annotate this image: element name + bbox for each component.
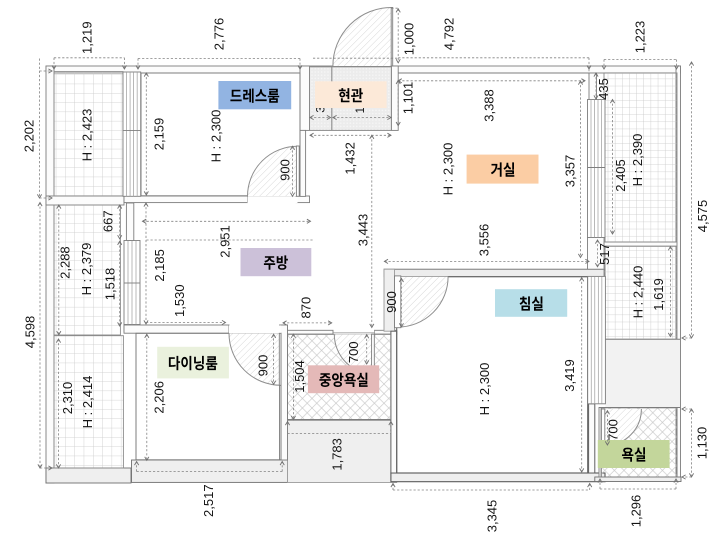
svg-text:2,185: 2,185 <box>152 249 167 282</box>
svg-text:700: 700 <box>346 341 361 363</box>
svg-text:2,517: 2,517 <box>201 484 216 517</box>
svg-text:2,776: 2,776 <box>212 18 227 51</box>
svg-text:3,419: 3,419 <box>562 359 577 392</box>
svg-text:1,219: 1,219 <box>79 21 94 54</box>
svg-text:2,206: 2,206 <box>152 381 167 414</box>
svg-text:1,223: 1,223 <box>633 21 648 54</box>
svg-text:H : 2,440: H : 2,440 <box>631 266 646 319</box>
svg-text:870: 870 <box>299 297 314 319</box>
svg-text:1,504: 1,504 <box>292 360 307 393</box>
svg-text:H : 2,423: H : 2,423 <box>80 109 95 162</box>
svg-text:H : 2,300: H : 2,300 <box>209 110 224 163</box>
svg-text:4,792: 4,792 <box>442 18 457 51</box>
svg-text:3,556: 3,556 <box>477 224 492 257</box>
svg-text:667: 667 <box>100 210 115 232</box>
svg-text:2,310: 2,310 <box>60 382 75 415</box>
svg-text:1,130: 1,130 <box>695 427 710 460</box>
svg-text:1,296: 1,296 <box>629 495 644 528</box>
svg-text:H : 2,300: H : 2,300 <box>440 143 455 196</box>
svg-text:1,783: 1,783 <box>329 438 344 471</box>
svg-text:1,000: 1,000 <box>402 23 417 56</box>
svg-text:1,432: 1,432 <box>343 142 358 175</box>
svg-text:H : 2,390: H : 2,390 <box>630 134 645 187</box>
svg-text:900: 900 <box>278 159 293 181</box>
svg-text:3,345: 3,345 <box>484 500 499 533</box>
svg-text:4,598: 4,598 <box>23 316 38 349</box>
svg-text:517: 517 <box>597 243 612 265</box>
svg-text:4,575: 4,575 <box>695 200 710 233</box>
svg-text:H : 2,300: H : 2,300 <box>477 363 492 416</box>
svg-text:900: 900 <box>384 291 399 313</box>
svg-text:3,357: 3,357 <box>563 155 578 188</box>
svg-text:H : 2,414: H : 2,414 <box>80 376 95 429</box>
svg-text:1,518: 1,518 <box>103 268 118 301</box>
svg-text:435: 435 <box>596 78 611 100</box>
svg-text:700: 700 <box>606 419 621 441</box>
svg-text:H : 2,379: H : 2,379 <box>79 243 94 296</box>
svg-text:1,101: 1,101 <box>400 82 415 115</box>
svg-text:2,951: 2,951 <box>217 225 232 258</box>
svg-text:1,530: 1,530 <box>172 284 187 317</box>
svg-text:2,288: 2,288 <box>58 246 73 279</box>
svg-text:3,388: 3,388 <box>482 89 497 122</box>
svg-text:1,619: 1,619 <box>651 278 666 311</box>
svg-text:900: 900 <box>256 355 271 377</box>
svg-text:2,159: 2,159 <box>152 118 167 151</box>
svg-text:3,443: 3,443 <box>355 214 370 247</box>
svg-text:2,202: 2,202 <box>22 120 37 153</box>
svg-text:2,405: 2,405 <box>613 159 628 192</box>
